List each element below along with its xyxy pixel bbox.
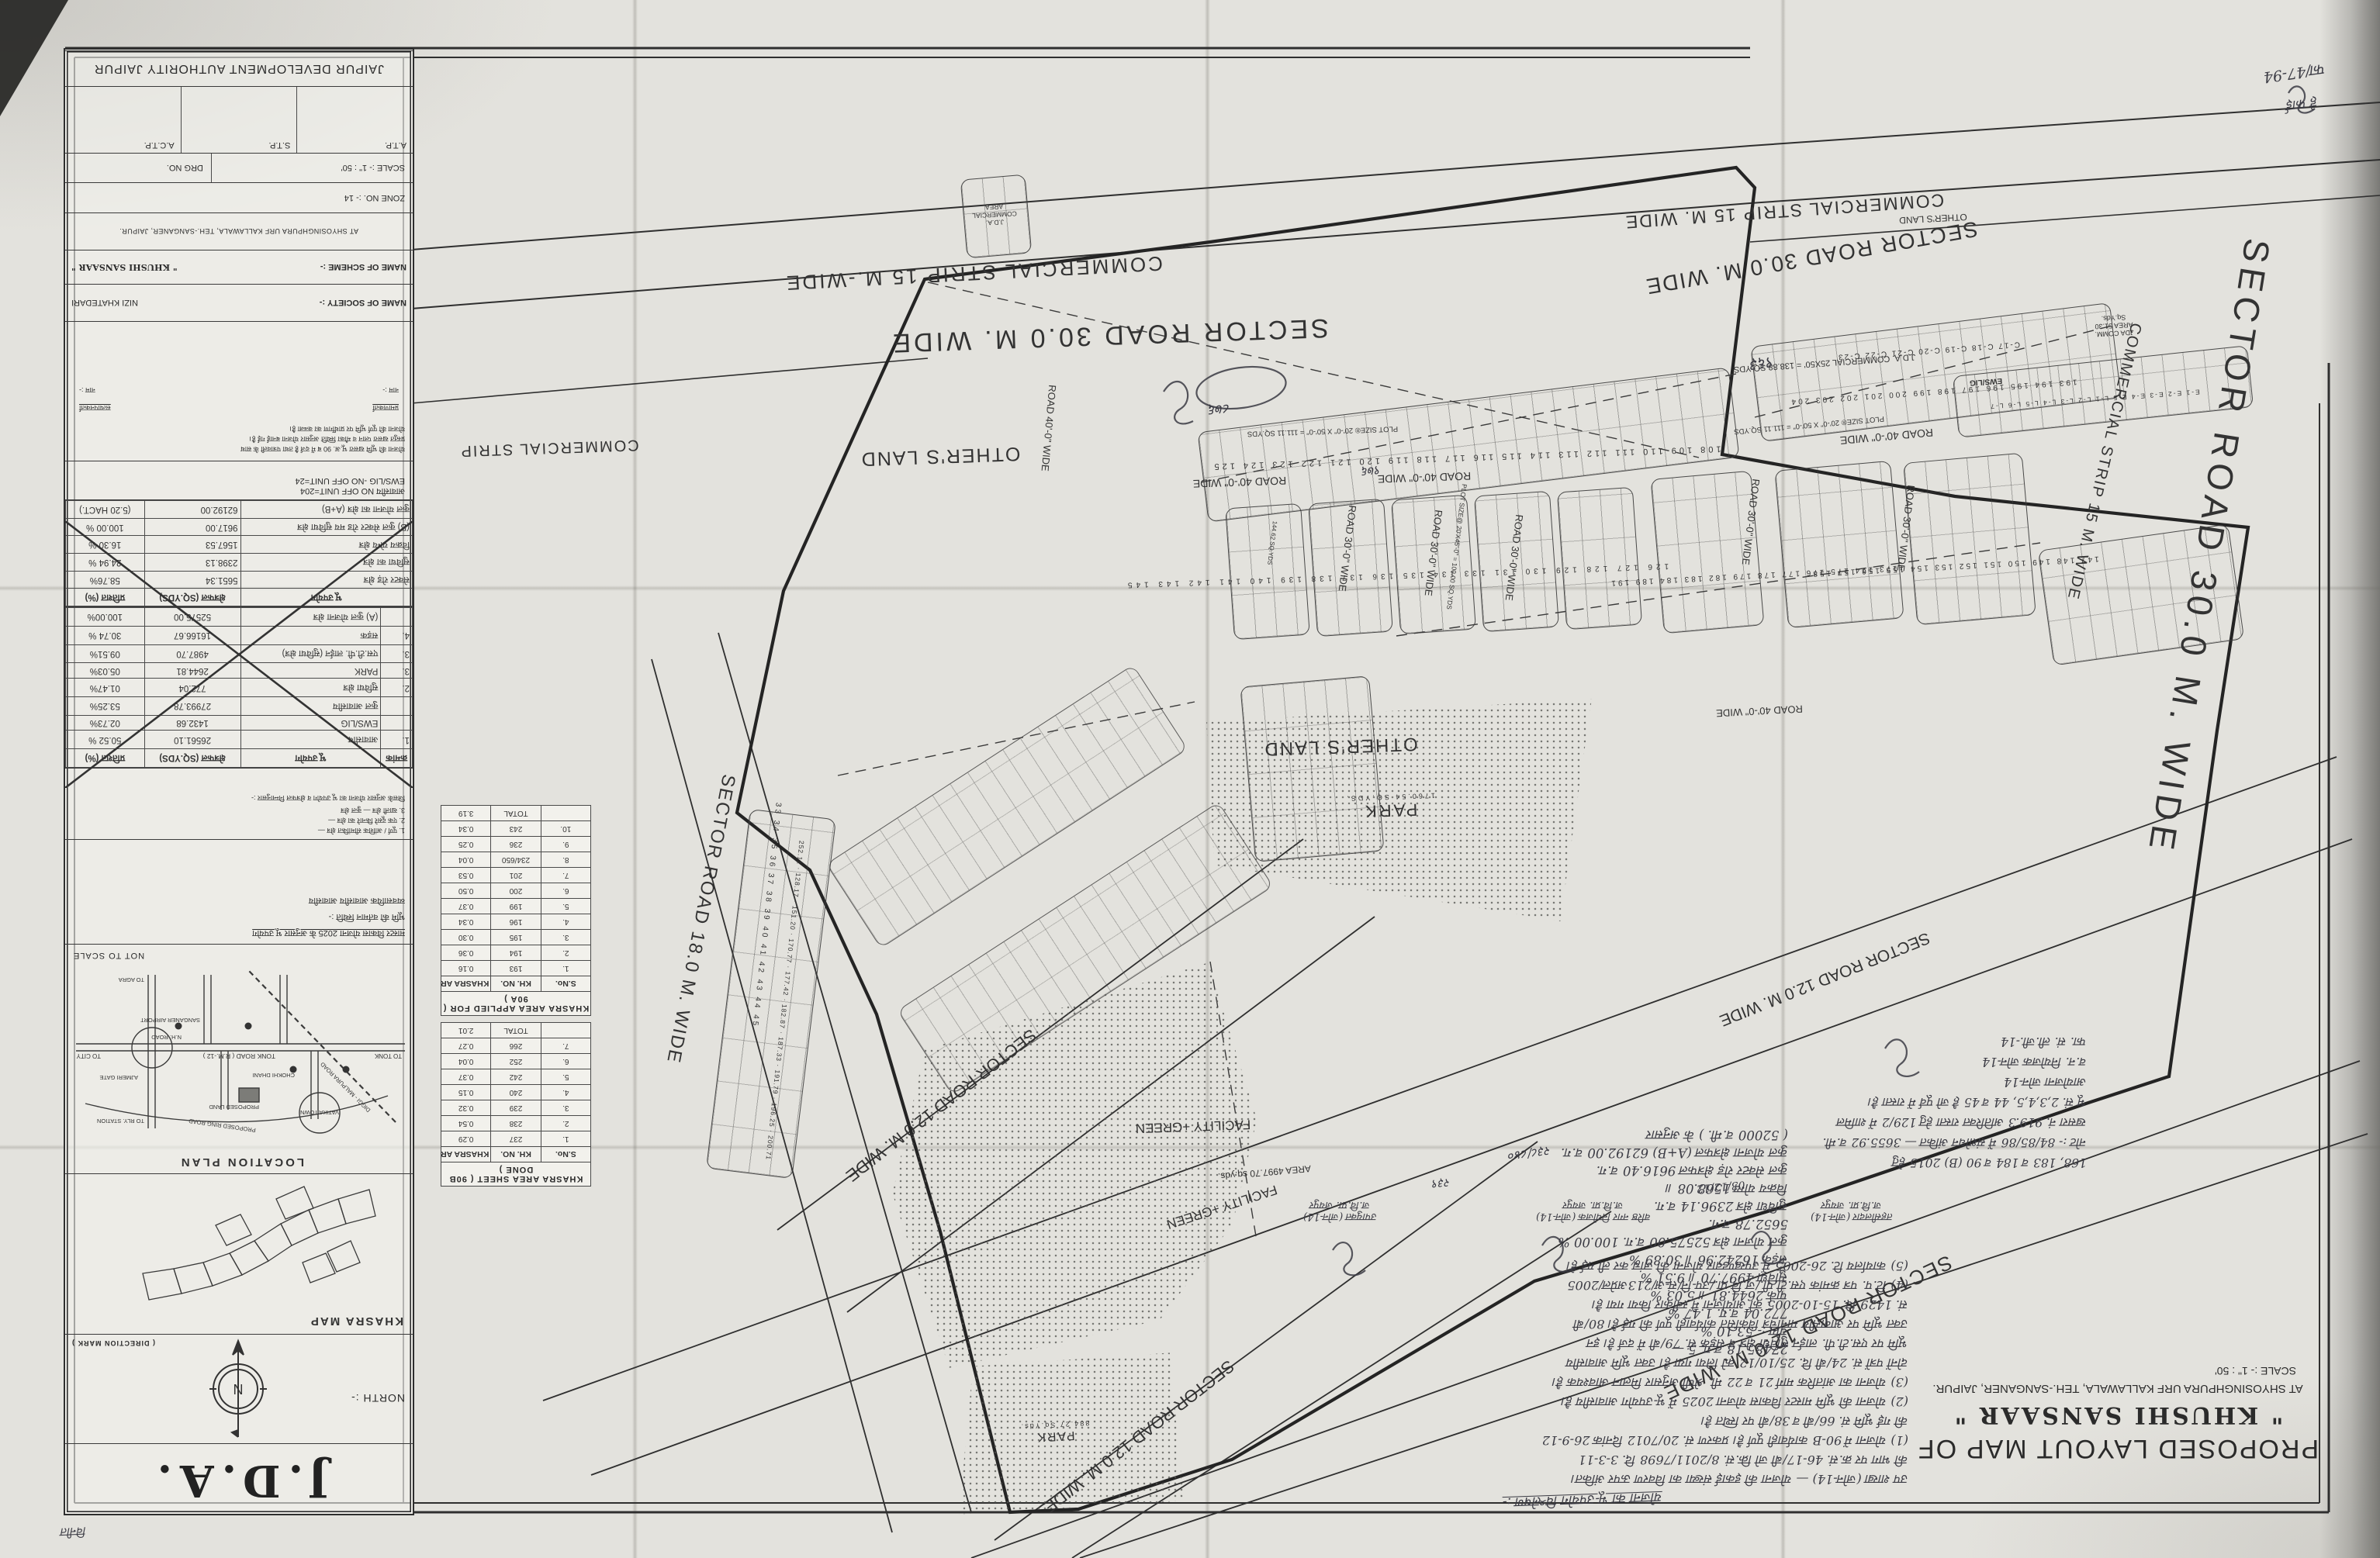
handwritten-line: आयोजना जोन-14 [1683, 1072, 2087, 1092]
table-cell: 2. [381, 679, 413, 697]
plot-block [1557, 487, 1642, 630]
table-cell: 0.34 [441, 914, 491, 930]
table-cell: 0.50 [441, 883, 491, 899]
panel-units-section: आवासीय NO OFF UNIT=204 EWS/LIG -NO OFF U… [65, 461, 413, 499]
north-label: NORTH :- [351, 1392, 405, 1404]
table-cell: PARK [240, 663, 381, 679]
table-cell: विक्रय योग्य क्षेत्र [240, 536, 412, 554]
scheme-name-title: " KHUSHI SANSAAR " [1908, 1401, 2327, 1428]
table-cell [381, 696, 413, 715]
table-cell: प्रतिशत (%) [66, 589, 145, 606]
declaration-line: प्रस्तुत खसरा प्लान व मौका स्थिति अनुसार… [73, 434, 405, 444]
table-cell: 2644.81 [144, 663, 240, 679]
handwritten-line: भू सं. 2,3,4,5, 44 व 45 है जो पूर्व में … [1683, 1092, 2087, 1112]
note-line: 2. एक दूसरे किनारे का क्षेत्र — [73, 816, 405, 826]
table-cell: 195 [491, 930, 541, 945]
location-plan-sketch: VATIKA TOWN PROPOSED RING ROAD DIGGI - M… [70, 968, 411, 1150]
masterplan-line: भूमि की वर्तमान स्थिति :- [73, 911, 405, 923]
location-to-tonk-label: TO TONK [374, 1052, 402, 1059]
panel-zone-row: ZONE NO. :- 14 [65, 182, 413, 212]
units-residential: आवासीय NO OFF UNIT=204 [73, 485, 405, 497]
certifier-label: प्रमाणकर्ता [372, 403, 399, 413]
table-cell: 772.04 [144, 679, 240, 697]
table-cell: 4. [381, 626, 413, 644]
scanned-layout-map-sheet: COMMERCIAL STRIP 15 M.-WIDE SECTOR ROAD … [0, 0, 2380, 1558]
note-line: जिसके अनुसार योजना का भू उपयोग व क्षेत्र… [73, 793, 405, 803]
handwritten-line: (1) योजना में 90-B कार्यवाही पूर्ण है। प… [1241, 1431, 1908, 1450]
title-block-panel: J.D.A. NORTH :- N ( DIRECTION MARK ) [64, 48, 414, 1515]
sheet-title: PROPOSED LAYOUT MAP OF [1908, 1433, 2327, 1463]
handwritten-notes-block: (5) कार्यालय टि. 26-2005 में उपखण्डवार य… [1241, 1256, 1908, 1489]
compass-icon: N [188, 1336, 289, 1442]
authority-name: JAIPUR DEVELOPMENT AUTHORITY JAIPUR [94, 62, 384, 76]
table-cell: 4987.70 [144, 644, 240, 663]
table-cell: सेक्टर रोड़ क्षेत्र [240, 571, 412, 589]
handwritten-right-notes: फा. सं. ली.जी.-14व.न. नियोजक जोन-14आयोजन… [1683, 1031, 2087, 1173]
table-cell: 8. [541, 852, 590, 868]
location-tonk-road-label: TONK ROAD ( R.M.-12 ) [202, 1052, 275, 1060]
panel-approval-row: A.T.P. S.T.P. A.C.T.P. [65, 86, 413, 153]
verifier-label: सत्यापनकर्ता [79, 403, 111, 413]
table-cell: 53.25% [66, 696, 145, 715]
table-cell: 3. [541, 930, 590, 945]
society-name: NIZI KHATEDARI [71, 299, 138, 308]
direction-mark-caption: ( DIRECTION MARK ) [71, 1339, 155, 1347]
table-cell: 0.32 [441, 1100, 491, 1116]
table-cell: 266 [491, 1038, 541, 1054]
table-cell: 243 [491, 821, 541, 837]
table-cell: 0.15 [441, 1085, 491, 1100]
note-line: 1. पूर्ण / आंशिक सीमांकित क्षेत्र — [73, 826, 405, 836]
declaration-line: योजना की पूर्ण भूमि पर प्रार्थीगण का कब्… [73, 424, 405, 434]
scheme-label: NAME OF SCHEME :- [320, 263, 406, 272]
table-cell: 0.29 [441, 1131, 491, 1147]
table-cell: भू उपयोग [240, 749, 381, 768]
table-cell: कुल योजना का क्षेत्र (A+B) [240, 501, 412, 519]
table-cell: 238 [491, 1116, 541, 1131]
svg-text:N: N [234, 1381, 244, 1397]
location-ajmeri-label: AJMERI GATE [100, 1074, 138, 1081]
panel-authority-row: JAIPUR DEVELOPMENT AUTHORITY JAIPUR [65, 50, 413, 86]
handwritten-line: (4) टि.प. पत्र क्रमांक एस.टी.पी./ज.वि.प्… [1241, 1276, 1908, 1295]
table-cell [381, 608, 413, 627]
plot-block [1774, 461, 1904, 628]
handwritten-line: व.न. नियोजक जोन-14 [1683, 1052, 2087, 1072]
panel-landuse-table-a: क्रमांकभू उपयोगक्षेत्रफल (SQ.YDS)प्रतिशत… [65, 606, 413, 768]
table-cell: 09.51% [66, 644, 145, 663]
table-cell: 100.00% [66, 608, 145, 627]
table-cell: 05.03% [66, 663, 145, 679]
table-cell: 2. [541, 1116, 590, 1131]
table-cell: 7. [541, 868, 590, 883]
table-cell: 16166.67 [144, 626, 240, 644]
table-cell: 52575.00 [144, 608, 240, 627]
table-cell: क्षेत्रफल (SQ.YDS) [144, 749, 240, 768]
table-cell: 5. [541, 1069, 590, 1085]
table-cell: 0.04 [441, 852, 491, 868]
table-cell: TOTAL [491, 1023, 541, 1038]
atp-cell: A.T.P. [296, 87, 413, 153]
table-cell: सुविधा का क्षेत्र [240, 554, 412, 572]
table-cell: 1. [381, 731, 413, 749]
signature-designation: वरिष्ठ नगर नियोजक (जोन-14)ज.वि.प्रा. जयप… [1536, 1198, 1651, 1221]
handwritten-line: कुल योजना क्षेत्र 52575.00 व.ग. 100.00 % [1338, 1233, 1788, 1251]
table-cell: 4. [541, 914, 590, 930]
khasra-map-title: KHASRA MAP [310, 1314, 403, 1328]
location-nh-label: N.H. ROAD [151, 1034, 182, 1041]
table-cell: 6. [541, 883, 590, 899]
table-cell: 02.73% [66, 715, 145, 731]
location-plan-title: LOCATION PLAN [179, 1156, 304, 1169]
khasra-table-title: KHASRA AREA APPLIED FOR ( 90A ) [441, 992, 591, 1016]
sheet-scale-note: SCALE :- 1" : 50' [1908, 1365, 2327, 1377]
location-airport-label: SANGANER AIRPORT [140, 1017, 200, 1024]
table-cell: 26561.10 [144, 731, 240, 749]
handwritten-bottom-left-mark: विनीत [61, 1523, 87, 1540]
panel-blank-strip [65, 9, 413, 50]
table-cell: 0.04 [441, 1054, 491, 1069]
table-cell: 27993.78 [144, 696, 240, 715]
drg-number-label: DRG NO. [65, 154, 211, 182]
table-cell [541, 806, 590, 821]
location-proposed-land-label: PROPOSED LAND [209, 1104, 259, 1111]
table-cell: आवासीय [240, 731, 381, 749]
table-cell: 9617.00 [144, 518, 240, 536]
panel-khasra-map-section: KHASRA MAP [65, 1173, 413, 1334]
table-cell: 9. [541, 837, 590, 852]
table-cell: 234/650 [491, 852, 541, 868]
jda-comm-area-label: JDA COMM. AREA 51.30 Sq.Yds. [2088, 313, 2140, 338]
location-vatika-label: VATIKA TOWN [300, 1109, 339, 1116]
table-cell: KHASRA AREA IN HACT. [441, 1147, 491, 1162]
table-cell: 0.54 [441, 1116, 491, 1131]
table-cell: भू उपयोग [240, 589, 412, 606]
society-label: NAME OF SOCIETY :- [320, 299, 406, 308]
table-cell: कुल आवासीय [240, 696, 381, 715]
table-cell: क्षेत्रफल (SQ.YDS) [144, 589, 240, 606]
table-cell: 24.94 % [66, 554, 145, 572]
location-to-agra-label: TO AGRA [119, 976, 144, 983]
table-cell: S.No. [541, 1147, 590, 1162]
table-cell: 01.47% [66, 679, 145, 697]
table-cell: 1432.68 [144, 715, 240, 731]
panel-address-row: AT SHYOSINGHPURA URF KALLAWALA, TEH.-SAN… [65, 212, 413, 250]
actp-cell: A.C.T.P. [65, 87, 181, 153]
scale-value: SCALE :- 1" : 50' [211, 154, 413, 182]
handwritten-line: 168, 183 व 184 व 90 (B) 2015 हेतु [1683, 1152, 2087, 1173]
table-cell: 0.25 [441, 837, 491, 852]
table-cell: 239 [491, 1100, 541, 1116]
handwritten-line: उक्त भूमि पर आवासीय मानचित्र विकसित कार्… [1241, 1314, 1908, 1334]
table-cell: 194 [491, 945, 541, 961]
table-cell: सुविधा क्षेत्र [240, 679, 381, 697]
table-cell: 7. [541, 1038, 590, 1054]
khasra-number-976: ९७६ [1361, 462, 1382, 481]
table-cell: 2398.13 [144, 554, 240, 572]
table-cell: 200 [491, 883, 541, 899]
table-cell: 3.19 [441, 806, 491, 821]
table-cell: 201 [491, 868, 541, 883]
panel-masterplan-section: मास्टर विकास योजना 2025 के अनुसार भू उपय… [65, 839, 413, 944]
jda-comm-area-label-topleft: J.D.A. COMMERCIAL AREA [967, 202, 1022, 228]
table-cell: 236 [491, 837, 541, 852]
table-cell: 3. [541, 1100, 590, 1116]
table-cell: 237 [491, 1131, 541, 1147]
sheet-title-block: PROPOSED LAYOUT MAP OF " KHUSHI SANSAAR … [1908, 1365, 2327, 1463]
stp-cell: S.T.P. [181, 87, 297, 153]
table-cell: 242 [491, 1069, 541, 1085]
signature-designation: उपायुक्त (जोन-14)ज.वि.प्रा. जयपुर [1303, 1198, 1377, 1221]
masterplan-line: व्यवसायिक आवासीय आवासीय [73, 895, 405, 907]
table-cell: 6. [541, 1054, 590, 1069]
table-cell: 5. [541, 899, 590, 914]
name-label: नाम :- [382, 385, 399, 396]
table-cell: 0.37 [441, 1069, 491, 1085]
table-cell: 30.74 % [66, 626, 145, 644]
panel-scale-drg-row: SCALE :- 1" : 50' DRG NO. [65, 153, 413, 182]
table-cell: KHASRA AREA IN HACT. [441, 976, 491, 992]
jda-logo-text: J.D.A. [65, 1447, 413, 1514]
table-cell: TOTAL [491, 806, 541, 821]
location-to-rly-label: TO RLY. STATION [97, 1118, 144, 1124]
table-cell: (5.20 HACT.) [66, 501, 145, 519]
panel-landuse-table-b: भू उपयोगक्षेत्रफल (SQ.YDS)प्रतिशत (%)सेक… [65, 499, 413, 606]
table-cell: 193 [491, 961, 541, 976]
table-cell: 50.52 % [66, 731, 145, 749]
table-cell: 100.00 % [66, 518, 145, 536]
table-cell: 0.34 [441, 821, 491, 837]
table-cell: 62192.00 [144, 501, 240, 519]
declaration-line: योजना की भूमि खसरा भू.अ. 90 ब में दर्ज ह… [73, 444, 405, 454]
not-to-scale-note: NOT TO SCALE [73, 951, 144, 960]
handwritten-line: खसरा नं. 919.3 अतिरिक्त रास्ता हेतु 129/… [1683, 1112, 2087, 1132]
panel-location-plan-section: LOCATION PLAN [65, 944, 413, 1173]
handwritten-line: दोनों पत्रों सं. 24/बी दि. 25/10/12 को ल… [1241, 1353, 1908, 1373]
masterplan-line: मास्टर विकास योजना 2025 के अनुसार भू उपय… [73, 928, 405, 939]
handwritten-line: (2) योजना की भूमि मास्टर विकास योजना 202… [1241, 1392, 1908, 1411]
table-cell: S.No. [541, 976, 590, 992]
table-cell: 3. [381, 644, 413, 663]
handwritten-line: सं. 1429 दि. 15-10-2005 को आयोजना में स्… [1241, 1295, 1908, 1314]
table-cell: EWS/LIG [240, 715, 381, 731]
table-cell: 3. [381, 663, 413, 679]
khasra-number-963: ९६३ [1749, 352, 1776, 376]
scheme-name: " KHUSHI SANSAAR " [71, 262, 178, 272]
table-cell: 1. [541, 961, 590, 976]
table-cell: 58.76% [66, 571, 145, 589]
khasra-table-title: KHASRA AREA SHEET ( 90B DONE ) [441, 1162, 591, 1187]
khasra-map-sketch [73, 1177, 406, 1309]
table-cell: एस.टी.पी. लाईन (सुविधा क्षेत्र) [240, 644, 381, 663]
khasra-number-876: ८७६ [1208, 399, 1231, 420]
panel-north-section: NORTH :- N ( DIRECTION MARK ) [65, 1334, 413, 1443]
table-cell: KH. NO. [491, 1147, 541, 1162]
park-label-north: PARK 1760.54 SQ.YDS. [1344, 791, 1436, 822]
table-cell: 0.53 [441, 868, 491, 883]
handwritten-line: की गई भूमि सं. 66/बी व 38/बी पर स्थित है… [1241, 1411, 1908, 1431]
table-cell: 0.37 [441, 899, 491, 914]
handwritten-line: (5) कार्यालय टि. 26-2005 में उपखण्डवार य… [1241, 1256, 1908, 1276]
handwritten-line: भूमि पर एस.टी.पी. लाईन सुविधा क्षेत्र व … [1241, 1334, 1908, 1353]
handwritten-line: उप शाखा (जोन-14) — योजना की इकाई संख्या … [1241, 1470, 1908, 1489]
table-cell: 10. [541, 821, 590, 837]
table-cell: 240 [491, 1085, 541, 1100]
table-cell: 252 [491, 1054, 541, 1069]
table-cell: 2.01 [441, 1023, 491, 1038]
signature-designation: तहसीलदार (जोन-14)ज.वि.प्रा. जयपुर [1811, 1198, 1893, 1221]
units-ews: EWS/LIG -NO OFF UNIT=24 [73, 476, 405, 485]
note-line: 3. खाली क्षेत्र — कुल क्षेत्र [73, 806, 405, 816]
park-title: PARK [1345, 799, 1436, 821]
panel-declaration-section: योजना की भूमि खसरा भू.अ. 90 ब में दर्ज ह… [65, 321, 413, 461]
plot-block [1903, 453, 2036, 626]
handwritten-line: (3) योजना का आंतरिक मार्ग 21 व 22 मी. श्… [1241, 1373, 1908, 1392]
zone-number: ZONE NO. :- 14 [344, 193, 405, 202]
park-label-south: PARK 884.27 Sq.Yds. [1020, 1418, 1091, 1444]
handwritten-line: नोट :- 84/85/86 में संशोधन अंकित — 3655.… [1683, 1132, 2087, 1152]
handwritten-line: की भाग पर क्र.सं. 46-17/बी जो क्रि.सं. 8… [1241, 1450, 1908, 1470]
table-cell: प्रतिशत (%) [66, 749, 145, 768]
table-cell: सड़क [240, 626, 381, 644]
table-cell: 196 [491, 914, 541, 930]
table-cell: 0.16 [441, 961, 491, 976]
location-ring-road-label: PROPOSED RING ROAD [188, 1118, 256, 1134]
panel-notes-section: 1. पूर्ण / आंशिक सीमांकित क्षेत्र — 2. ए… [65, 768, 413, 839]
table-cell: 16.30 % [66, 536, 145, 554]
table-cell: 4. [541, 1085, 590, 1100]
panel-scheme-row: NAME OF SCHEME :- " KHUSHI SANSAAR " [65, 250, 413, 284]
location-chokhi-label: CHOKHI DHANI [252, 1072, 295, 1079]
table-cell: 5651.34 [144, 571, 240, 589]
khasra-area-sheet-table: KHASRA AREA SHEET ( 90B DONE ) S.No.KH. … [441, 1022, 591, 1187]
table-cell: 0.36 [441, 945, 491, 961]
name-label: नाम :- [79, 385, 95, 396]
table-cell: KH. NO. [491, 976, 541, 992]
sheet-subtitle-address: AT SHYOSINGHPURA URF KALLAWALA, TEH.-SAN… [1908, 1382, 2327, 1395]
table-cell: 0.27 [441, 1038, 491, 1054]
handwritten-line: फा. सं. ली.जी.-14 [1683, 1031, 2087, 1052]
table-cell: (A) कुल योजना क्षेत्र [240, 608, 381, 627]
scheme-address: AT SHYOSINGHPURA URF KALLAWALA, TEH.-SAN… [119, 228, 358, 236]
table-cell [381, 715, 413, 731]
table-cell: 2. [541, 945, 590, 961]
khasra-area-applied-table: KHASRA AREA APPLIED FOR ( 90A ) S.No.KH.… [441, 805, 591, 1016]
table-cell: 199 [491, 899, 541, 914]
plot-block [1225, 503, 1310, 640]
table-cell: 1567.53 [144, 536, 240, 554]
table-cell: (B) कुल सेक्टर रोड मय सुविधा क्षेत्र [240, 518, 412, 536]
panel-jda-logo-section: J.D.A. [65, 1443, 413, 1514]
table-cell: 1. [541, 1131, 590, 1147]
handwritten-signature-row: उपायुक्त (जोन-14)ज.वि.प्रा. जयपुर वरिष्ठ… [1303, 1198, 1893, 1221]
panel-society-row: NAME OF SOCIETY :- NIZI KHATEDARI [65, 284, 413, 321]
table-cell [541, 1023, 590, 1038]
table-cell: 0.30 [441, 930, 491, 945]
table-cell: क्रमांक [381, 749, 413, 768]
location-to-city-label: TO CITY [76, 1052, 101, 1059]
